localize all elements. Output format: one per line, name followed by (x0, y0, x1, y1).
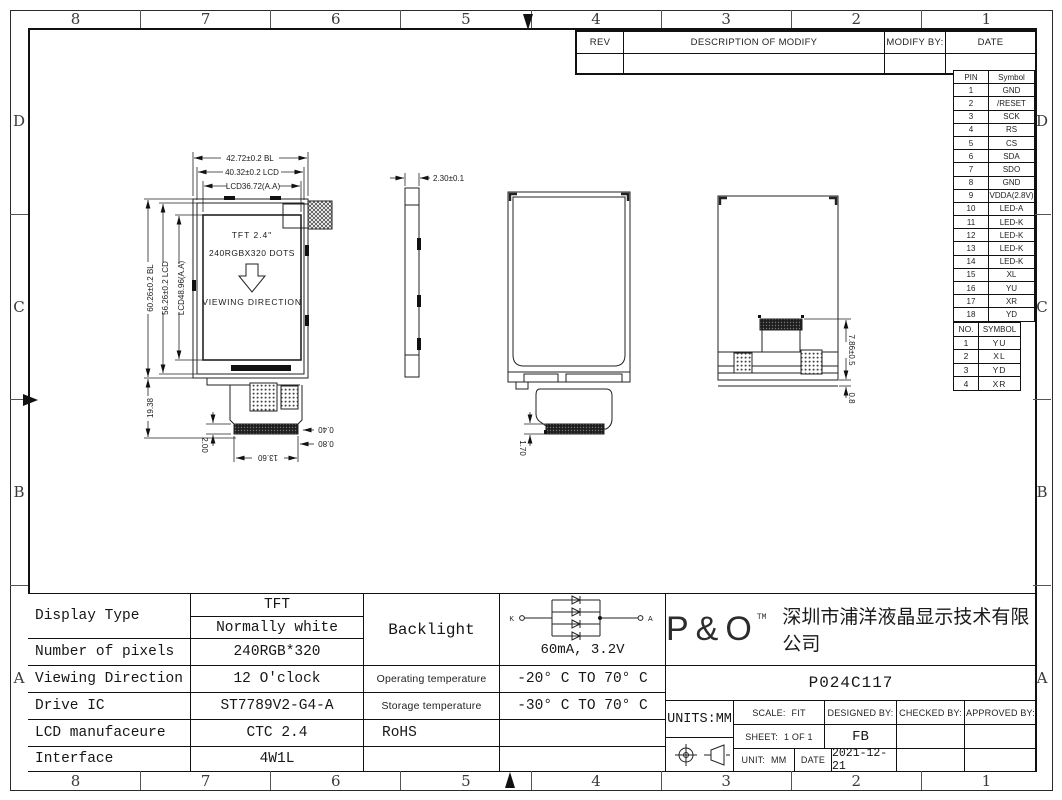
pin-row: 5CS (954, 136, 1034, 149)
designed-by-value: FB (824, 724, 896, 748)
border-col-label: 2 (792, 10, 922, 28)
trademark-mark: TM (757, 613, 767, 622)
env-empty-label (363, 746, 499, 771)
rohs-label: RoHS (363, 719, 499, 746)
border-col-label: 1 (922, 771, 1051, 790)
title-empty-cell (964, 748, 1036, 771)
company-name: 深圳市浦洋液晶显示技术有限公司 (782, 602, 1035, 656)
symbol-header: Symbol (989, 71, 1034, 83)
scale-label: SCALE: (752, 708, 785, 718)
viewing-direction-value: 12 O'clock (190, 665, 363, 692)
spec-table: Display Type TFT Normally white Number o… (28, 593, 1035, 771)
touch-pin-row: 3YD (954, 363, 1020, 377)
border-col-label: 4 (532, 10, 662, 28)
pin-row: 3SCK (954, 110, 1034, 123)
pixels-value: 240RGB*320 (190, 638, 363, 665)
pin-row: 14LED-K (954, 255, 1034, 268)
part-number: P024C117 (666, 665, 1036, 701)
units-label: UNITS:MM (666, 701, 733, 737)
engineering-drawing-sheet: 8 7 6 5 4 3 2 1 8 7 6 5 4 3 2 1 D C B A … (0, 0, 1062, 800)
symbol-header: SYMBOL (979, 323, 1020, 336)
backlight-label: Backlight (363, 594, 499, 665)
pin-row: 18YD (954, 307, 1034, 320)
border-col-label: 3 (662, 10, 792, 28)
led-cathode-label: K (509, 616, 514, 623)
revision-table: REV DESCRIPTION OF MODIFY MODIFY BY: DAT… (575, 30, 1037, 75)
pin-row: 8GND (954, 176, 1034, 189)
storage-temp-value: -30° C TO 70° C (499, 692, 665, 719)
border-col-label: 7 (141, 10, 271, 28)
border-col-label: 4 (532, 771, 662, 790)
pin-row: 9VDDA(2.8V) (954, 189, 1034, 202)
border-col-label: 6 (271, 10, 401, 28)
touch-pin-row: 1YU (954, 336, 1020, 350)
display-type-label: Display Type (28, 594, 190, 638)
touch-pin-row: 2XL (954, 349, 1020, 363)
title-block-grid: UNITS:MM S (666, 700, 1035, 771)
border-col-label: 2 (792, 771, 922, 790)
border-col-label: 8 (11, 10, 141, 28)
sheet-cell: SHEET: 1 OF 1 (733, 724, 824, 748)
sheet-value: 1 OF 1 (784, 732, 813, 742)
scale-cell: SCALE: FIT (733, 701, 824, 724)
drive-ic-value: ST7789V2-G4-A (190, 692, 363, 719)
border-row-label: C (10, 215, 28, 401)
border-col-label: 6 (271, 771, 401, 790)
border-scale-bottom: 8 7 6 5 4 3 2 1 (11, 771, 1051, 790)
pin-table: PINSymbol 1GND 2/RESET 3SCK 4RS 5CS 6SDA… (953, 70, 1035, 322)
border-scale-left: D C B A (10, 29, 28, 770)
operating-temp-label: Operating temperature (363, 665, 499, 692)
drive-ic-label: Drive IC (28, 692, 190, 719)
pin-row: 17XR (954, 294, 1034, 307)
border-col-label: 8 (11, 771, 141, 790)
modify-by-empty-cell (885, 54, 946, 73)
date-header: DATE (946, 32, 1035, 53)
modify-by-header: MODIFY BY: (885, 32, 946, 53)
date-value: 2021-12-21 (831, 748, 896, 771)
date-label: DATE (794, 748, 831, 771)
manufacturer-label: LCD manufaceure (28, 719, 190, 746)
approved-by-value-empty (964, 724, 1036, 748)
pin-row: 6SDA (954, 149, 1034, 162)
backlight-value-cell: K A 60mA, 3.2V (499, 594, 665, 665)
backlight-rating: 60mA, 3.2V (540, 642, 624, 658)
env-empty-value (499, 746, 665, 771)
sheet-label: SHEET: (745, 732, 778, 742)
projection-symbol (666, 737, 733, 771)
touch-pin-row: 4XR (954, 376, 1020, 390)
border-row-label: B (10, 400, 28, 586)
pin-row: 11LED-K (954, 215, 1034, 228)
pin-row: 10LED-A (954, 202, 1034, 215)
company-logo: P&O (666, 610, 759, 649)
border-scale-top: 8 7 6 5 4 3 2 1 (11, 10, 1051, 28)
border-row-label: D (10, 29, 28, 215)
pin-row: 1GND (954, 83, 1034, 96)
touch-pin-table: NO.SYMBOL 1YU 2XL 3YD 4XR (953, 322, 1021, 391)
border-row-label: B (1033, 400, 1051, 586)
checked-by-value-empty (896, 724, 964, 748)
border-col-label: 1 (922, 10, 1051, 28)
viewing-direction-label: Viewing Direction (28, 665, 190, 692)
pin-row: 13LED-K (954, 241, 1034, 254)
pin-row: 15XL (954, 268, 1034, 281)
company-header: P&O TM 深圳市浦洋液晶显示技术有限公司 (666, 594, 1035, 665)
title-empty-cell (896, 748, 964, 771)
scale-value: FIT (792, 708, 806, 718)
interface-label: Interface (28, 746, 190, 771)
interface-value: 4W1L (190, 746, 363, 771)
pin-row: 4RS (954, 123, 1034, 136)
border-col-label: 5 (401, 10, 531, 28)
description-empty-cell (624, 54, 885, 73)
storage-temp-label: Storage temperature (363, 692, 499, 719)
description-header: DESCRIPTION OF MODIFY (624, 32, 885, 53)
operating-temp-value: -20° C TO 70° C (499, 665, 665, 692)
border-col-label: 7 (141, 771, 271, 790)
pin-row: 7SDO (954, 162, 1034, 175)
pin-header: PIN (954, 71, 989, 83)
border-scale-right: D C B A (1033, 29, 1051, 770)
rohs-value-empty (499, 719, 665, 746)
manufacturer-value: CTC 2.4 (190, 719, 363, 746)
rev-header: REV (577, 32, 624, 53)
border-col-label: 5 (401, 771, 531, 790)
rev-empty-cell (577, 54, 624, 73)
led-circuit-diagram: K A (500, 594, 666, 642)
pin-row: 12LED-K (954, 228, 1034, 241)
pin-row: 16YU (954, 281, 1034, 294)
third-angle-projection-icon (666, 738, 733, 772)
unit-value: MM (771, 755, 786, 765)
checked-by-label: CHECKED BY: (896, 701, 964, 724)
unit-cell: UNIT: MM (733, 748, 794, 771)
border-row-label: A (10, 586, 28, 771)
approved-by-label: APPROVED BY: (964, 701, 1036, 724)
led-anode-label: A (648, 616, 653, 623)
border-col-label: 3 (662, 771, 792, 790)
pixels-label: Number of pixels (28, 638, 190, 665)
display-type-value2: Normally white (190, 616, 363, 638)
unit-label: UNIT: (742, 755, 766, 765)
designed-by-label: DESIGNED BY: (824, 701, 896, 724)
no-header: NO. (954, 323, 979, 336)
display-type-value1: TFT (190, 594, 363, 616)
pin-row: 2/RESET (954, 96, 1034, 109)
title-block: P&O TM 深圳市浦洋液晶显示技术有限公司 P024C117 UNITS:MM (665, 594, 1035, 771)
border-row-label: C (1033, 215, 1051, 401)
